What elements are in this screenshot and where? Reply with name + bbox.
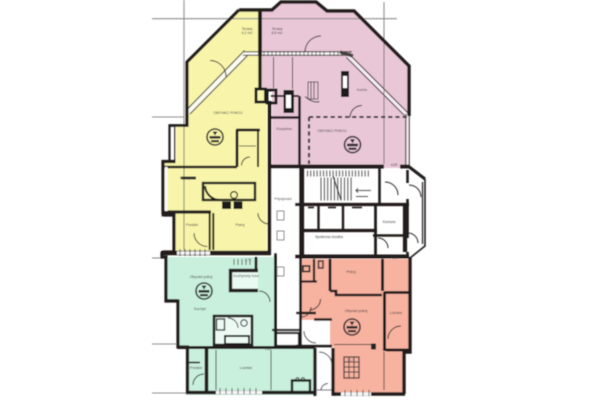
svg-text:Predsin: Predsin: [190, 366, 202, 370]
svg-text:8,6 m2: 8,6 m2: [272, 31, 283, 35]
svg-text:Kuchyn: Kuchyn: [180, 176, 192, 180]
svg-text:4,2 m2: 4,2 m2: [242, 31, 253, 35]
svg-text:4,05: 4,05: [391, 163, 398, 167]
svg-text:Komin: Komin: [357, 88, 367, 92]
svg-text:Kuchyn: Kuchyn: [194, 307, 206, 311]
svg-text:Spolecna chodba: Spolecna chodba: [315, 235, 343, 239]
svg-text:Komora: Komora: [383, 220, 396, 224]
svg-text:Kuchynsky kout: Kuchynsky kout: [233, 274, 258, 278]
svg-text:Obyvaci pokoj: Obyvaci pokoj: [345, 309, 368, 313]
svg-text:OBYVACI POKOJ: OBYVACI POKOJ: [318, 129, 347, 133]
svg-text:4,05: 4,05: [391, 256, 398, 260]
svg-text:Pripojovaci: Pripojovaci: [274, 197, 292, 201]
svg-text:Pokoj: Pokoj: [236, 223, 245, 227]
svg-text:Loznice: Loznice: [390, 311, 402, 315]
svg-text:Koupelna: Koupelna: [276, 127, 291, 131]
svg-text:OBYVACI POKOJ: OBYVACI POKOJ: [214, 111, 243, 115]
svg-text:14,2: 14,2: [347, 358, 353, 362]
svg-text:Predsin: Predsin: [186, 223, 198, 227]
svg-text:Obyvaci pokoj: Obyvaci pokoj: [190, 275, 213, 279]
svg-text:1,80: 1,80: [265, 347, 271, 351]
svg-text:2,72: 2,72: [245, 258, 251, 262]
svg-text:Pokoj: Pokoj: [347, 270, 356, 274]
svg-text:Loznice: Loznice: [240, 366, 252, 370]
